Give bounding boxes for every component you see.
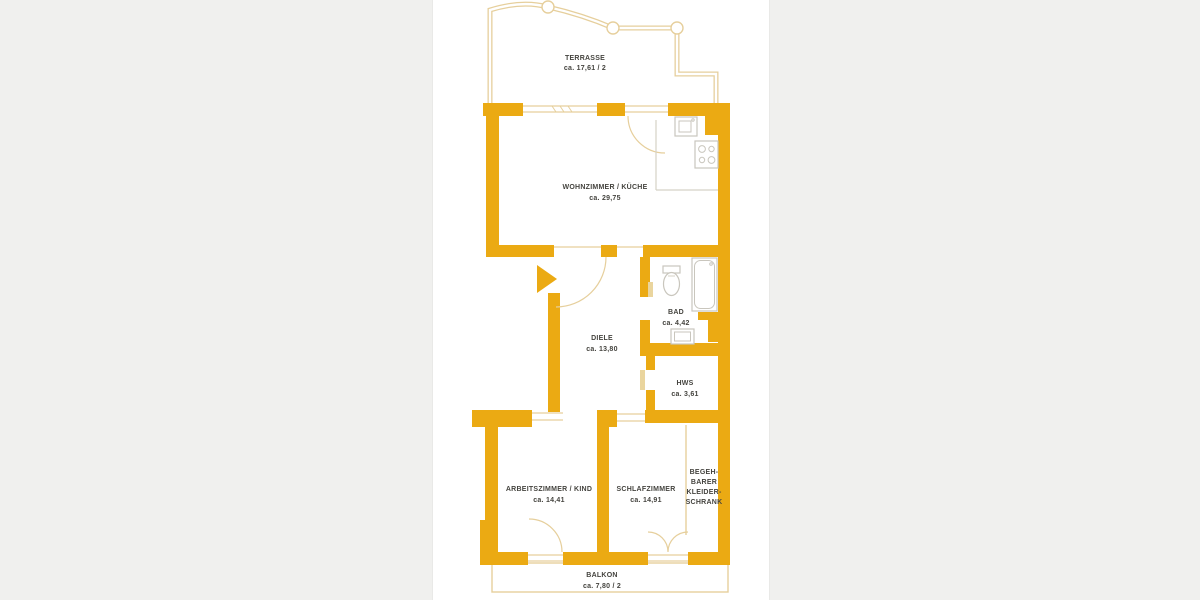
room-area: ca. 14,91 <box>630 497 661 504</box>
room-name: TERRASSE <box>565 55 605 62</box>
room-wohnzimmer-kueche: WOHNZIMMER / KÜCHE ca. 29,75 <box>563 182 648 202</box>
room-name-line: BEGEH- <box>690 469 719 476</box>
terrace-post <box>671 22 683 34</box>
room-arbeitszimmer-kind: ARBEITSZIMMER / KIND ca. 14,41 <box>506 486 592 504</box>
room-area: ca. 29,75 <box>589 195 620 202</box>
room-area: ca. 17,61 / 2 <box>564 65 606 72</box>
kitchen-sink-fixture <box>675 117 697 136</box>
fixtures <box>656 117 718 344</box>
room-area: ca. 14,41 <box>533 497 564 504</box>
room-bad: BAD ca. 4,42 <box>662 309 689 327</box>
terrace-outline <box>490 1 716 103</box>
terrace-post <box>542 1 554 13</box>
room-area: ca. 13,80 <box>586 346 617 353</box>
room-hws: HWS ca. 3,61 <box>671 380 698 398</box>
bathroom-sink-fixture <box>671 329 694 344</box>
stove-fixture <box>695 141 718 168</box>
room-schlafzimmer: SCHLAFZIMMER ca. 14,91 <box>617 486 676 504</box>
room-name: BALKON <box>586 572 617 579</box>
room-name-line: BARER <box>691 479 717 486</box>
page-background: TERRASSE ca. 17,61 / 2 WOHNZIMMER / KÜCH… <box>0 0 1200 600</box>
bath-door-leaf <box>648 282 653 297</box>
room-terrasse: TERRASSE ca. 17,61 / 2 <box>564 55 606 72</box>
entrance-arrow-icon <box>537 265 557 293</box>
room-name: SCHLAFZIMMER <box>617 486 676 493</box>
room-name: HWS <box>676 380 693 387</box>
terrace-post <box>607 22 619 34</box>
room-name: ARBEITSZIMMER / KIND <box>506 486 592 493</box>
room-area: ca. 4,42 <box>662 320 689 327</box>
toilet-fixture <box>663 266 680 296</box>
room-name: DIELE <box>591 335 613 342</box>
room-balkon: BALKON ca. 7,80 / 2 <box>583 572 621 590</box>
room-name-line: KLEIDER- <box>686 489 721 496</box>
bathtub-fixture <box>692 258 717 311</box>
room-name: BAD <box>668 309 684 316</box>
room-diele: DIELE ca. 13,80 <box>586 335 617 353</box>
room-begehbarer-kleiderschrank: BEGEH- BARER KLEIDER- SCHRANK <box>686 469 723 506</box>
floor-plan: TERRASSE ca. 17,61 / 2 WOHNZIMMER / KÜCH… <box>0 0 1200 600</box>
room-name-line: SCHRANK <box>686 499 723 506</box>
room-area: ca. 7,80 / 2 <box>583 583 621 590</box>
room-area: ca. 3,61 <box>671 391 698 398</box>
room-name: WOHNZIMMER / KÜCHE <box>563 182 648 191</box>
hws-door-leaf <box>640 370 645 390</box>
